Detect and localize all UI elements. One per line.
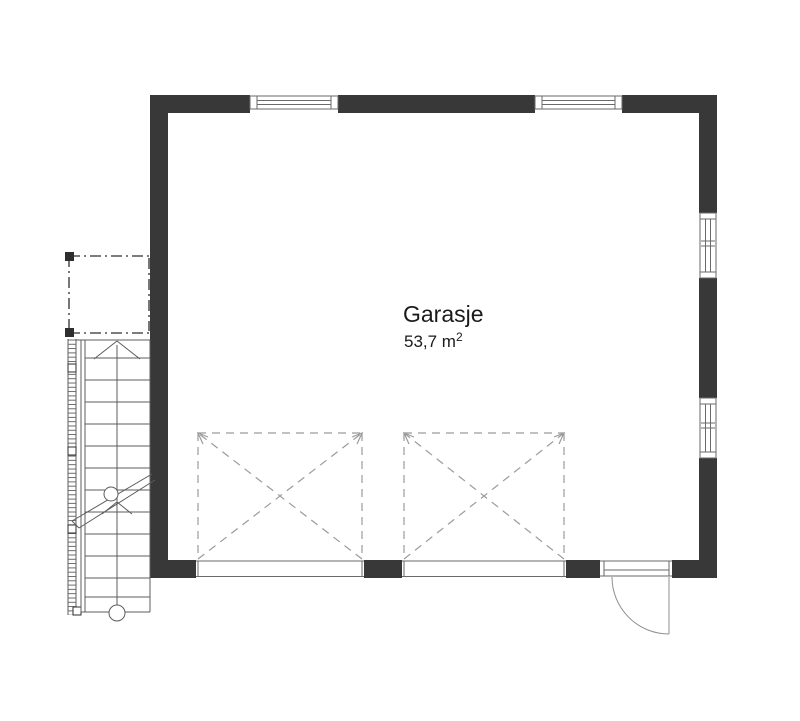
arrowhead (198, 433, 208, 444)
window-top-left (250, 96, 338, 109)
floor-plan-canvas: Garasje 53,7 m2 (0, 0, 800, 721)
window-frame (535, 96, 622, 109)
floor-plan-svg: Garasje 53,7 m2 (0, 0, 800, 721)
garage-door-left (196, 433, 364, 577)
wall-top-segment (338, 95, 535, 113)
room-name-label: Garasje (403, 301, 484, 327)
external-staircase (68, 339, 155, 621)
stair-railing (68, 339, 76, 615)
stair-direction-arrow (117, 341, 140, 359)
window-right-upper (700, 213, 716, 278)
post-marker (65, 328, 74, 337)
railing-post (68, 364, 76, 372)
wall-bottom-segment (150, 560, 196, 578)
wall-bottom-pier (364, 560, 402, 578)
window-frame (250, 96, 338, 109)
window-top-right (535, 96, 622, 109)
stair-start-circle (109, 605, 125, 621)
wall-right-segment (699, 95, 717, 213)
entry-door (600, 561, 672, 634)
railing-post (73, 607, 81, 615)
room-area-label: 53,7 m2 (404, 330, 463, 351)
garage-door-right (402, 433, 566, 577)
carport-outline (65, 252, 150, 337)
post-marker (65, 252, 74, 261)
railing-post (68, 447, 76, 455)
stair-direction-arrow (94, 341, 117, 359)
room-label: Garasje 53,7 m2 (403, 301, 484, 351)
wall-left (150, 95, 168, 578)
wall-right-segment (699, 278, 717, 398)
window-right-lower (700, 398, 716, 458)
arrowhead (352, 433, 362, 444)
wall-bottom-segment (672, 560, 717, 578)
stair-break-circle (104, 487, 118, 501)
railing-post (68, 525, 76, 533)
wall-bottom-segment (566, 560, 600, 578)
door-swing-arc (612, 577, 669, 634)
